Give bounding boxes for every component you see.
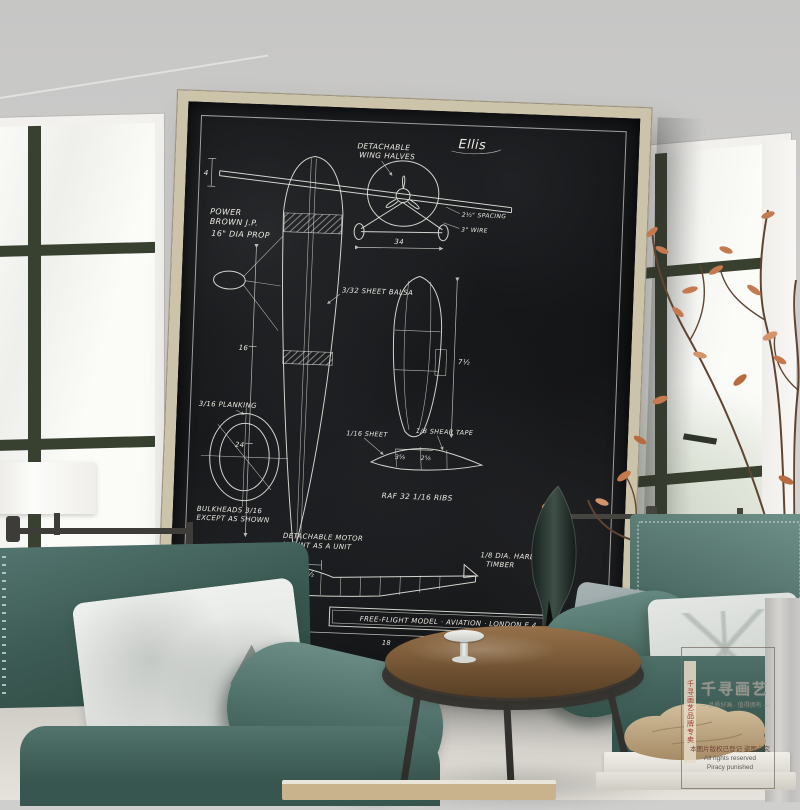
svg-text:7½: 7½ <box>458 358 470 366</box>
floor-lamp-left-shade <box>0 462 96 514</box>
watermark-stamp-text: 千寻画艺品牌专卖 <box>687 680 694 744</box>
window-left-mullion-vertical <box>28 126 41 583</box>
rust-leaves <box>541 210 795 510</box>
label-wire: 3" WIRE <box>461 227 488 235</box>
label-power-1: POWER <box>210 207 242 217</box>
armchair-left-nailhead-trim <box>2 556 6 698</box>
svg-text:24: 24 <box>235 441 245 449</box>
label-sheet: 1/16 SHEET <box>346 429 388 439</box>
label-detachable-2: WING HALVES <box>359 150 415 161</box>
tan-book <box>282 780 556 800</box>
watermark-brand: 千寻画艺 <box>698 678 772 699</box>
watermark-tagline: — 品质好画 · 值得拥有 — <box>696 700 774 709</box>
watermark-notice-en-2: Piracy punished <box>688 764 772 771</box>
coffee-table-top <box>385 626 641 698</box>
svg-text:18: 18 <box>382 639 391 647</box>
poster-signature: Ellis <box>458 137 486 153</box>
watermark-notice-en-1: All rights reserved <box>688 755 772 762</box>
label-shear: 1/8 SHEAR TAPE <box>416 427 474 437</box>
label-planking: 3/16 PLANKING <box>199 400 257 410</box>
svg-text:4: 4 <box>204 169 209 177</box>
svg-text:2⅝: 2⅝ <box>421 455 432 462</box>
candy-dish-foot <box>452 656 476 663</box>
label-timber-2: TIMBER <box>486 560 515 569</box>
svg-text:16: 16 <box>239 344 249 352</box>
bulkhead-section <box>199 406 290 508</box>
label-power-3: 16" DIA PROP <box>211 229 270 240</box>
label-power-2: BROWN J.P. <box>210 217 259 228</box>
candy-dish <box>444 630 484 642</box>
window-left <box>0 114 164 594</box>
svg-text:3⅝: 3⅝ <box>395 454 406 461</box>
label-spacing: 2½" SPACING <box>462 212 507 221</box>
svg-text:34: 34 <box>394 238 404 246</box>
label-raf: RAF 32 1/16 RIBS <box>381 491 452 503</box>
watermark-notice-cn: 本图片版权已登记 盗图必究 <box>688 743 772 753</box>
watermark-box: 千寻画艺品牌专卖 千寻画艺 — 品质好画 · 值得拥有 — 本图片版权已登记 盗… <box>681 647 775 789</box>
window-left-glass <box>0 123 155 584</box>
airfoil-detail: 1/16 SHEET 1/8 SHEAR TAPE RAF 32 1/16 RI… <box>344 424 483 504</box>
label-bulkheads-2: EXCEPT AS SHOWN <box>196 514 269 525</box>
floor-lamp-left-arm <box>10 528 192 534</box>
